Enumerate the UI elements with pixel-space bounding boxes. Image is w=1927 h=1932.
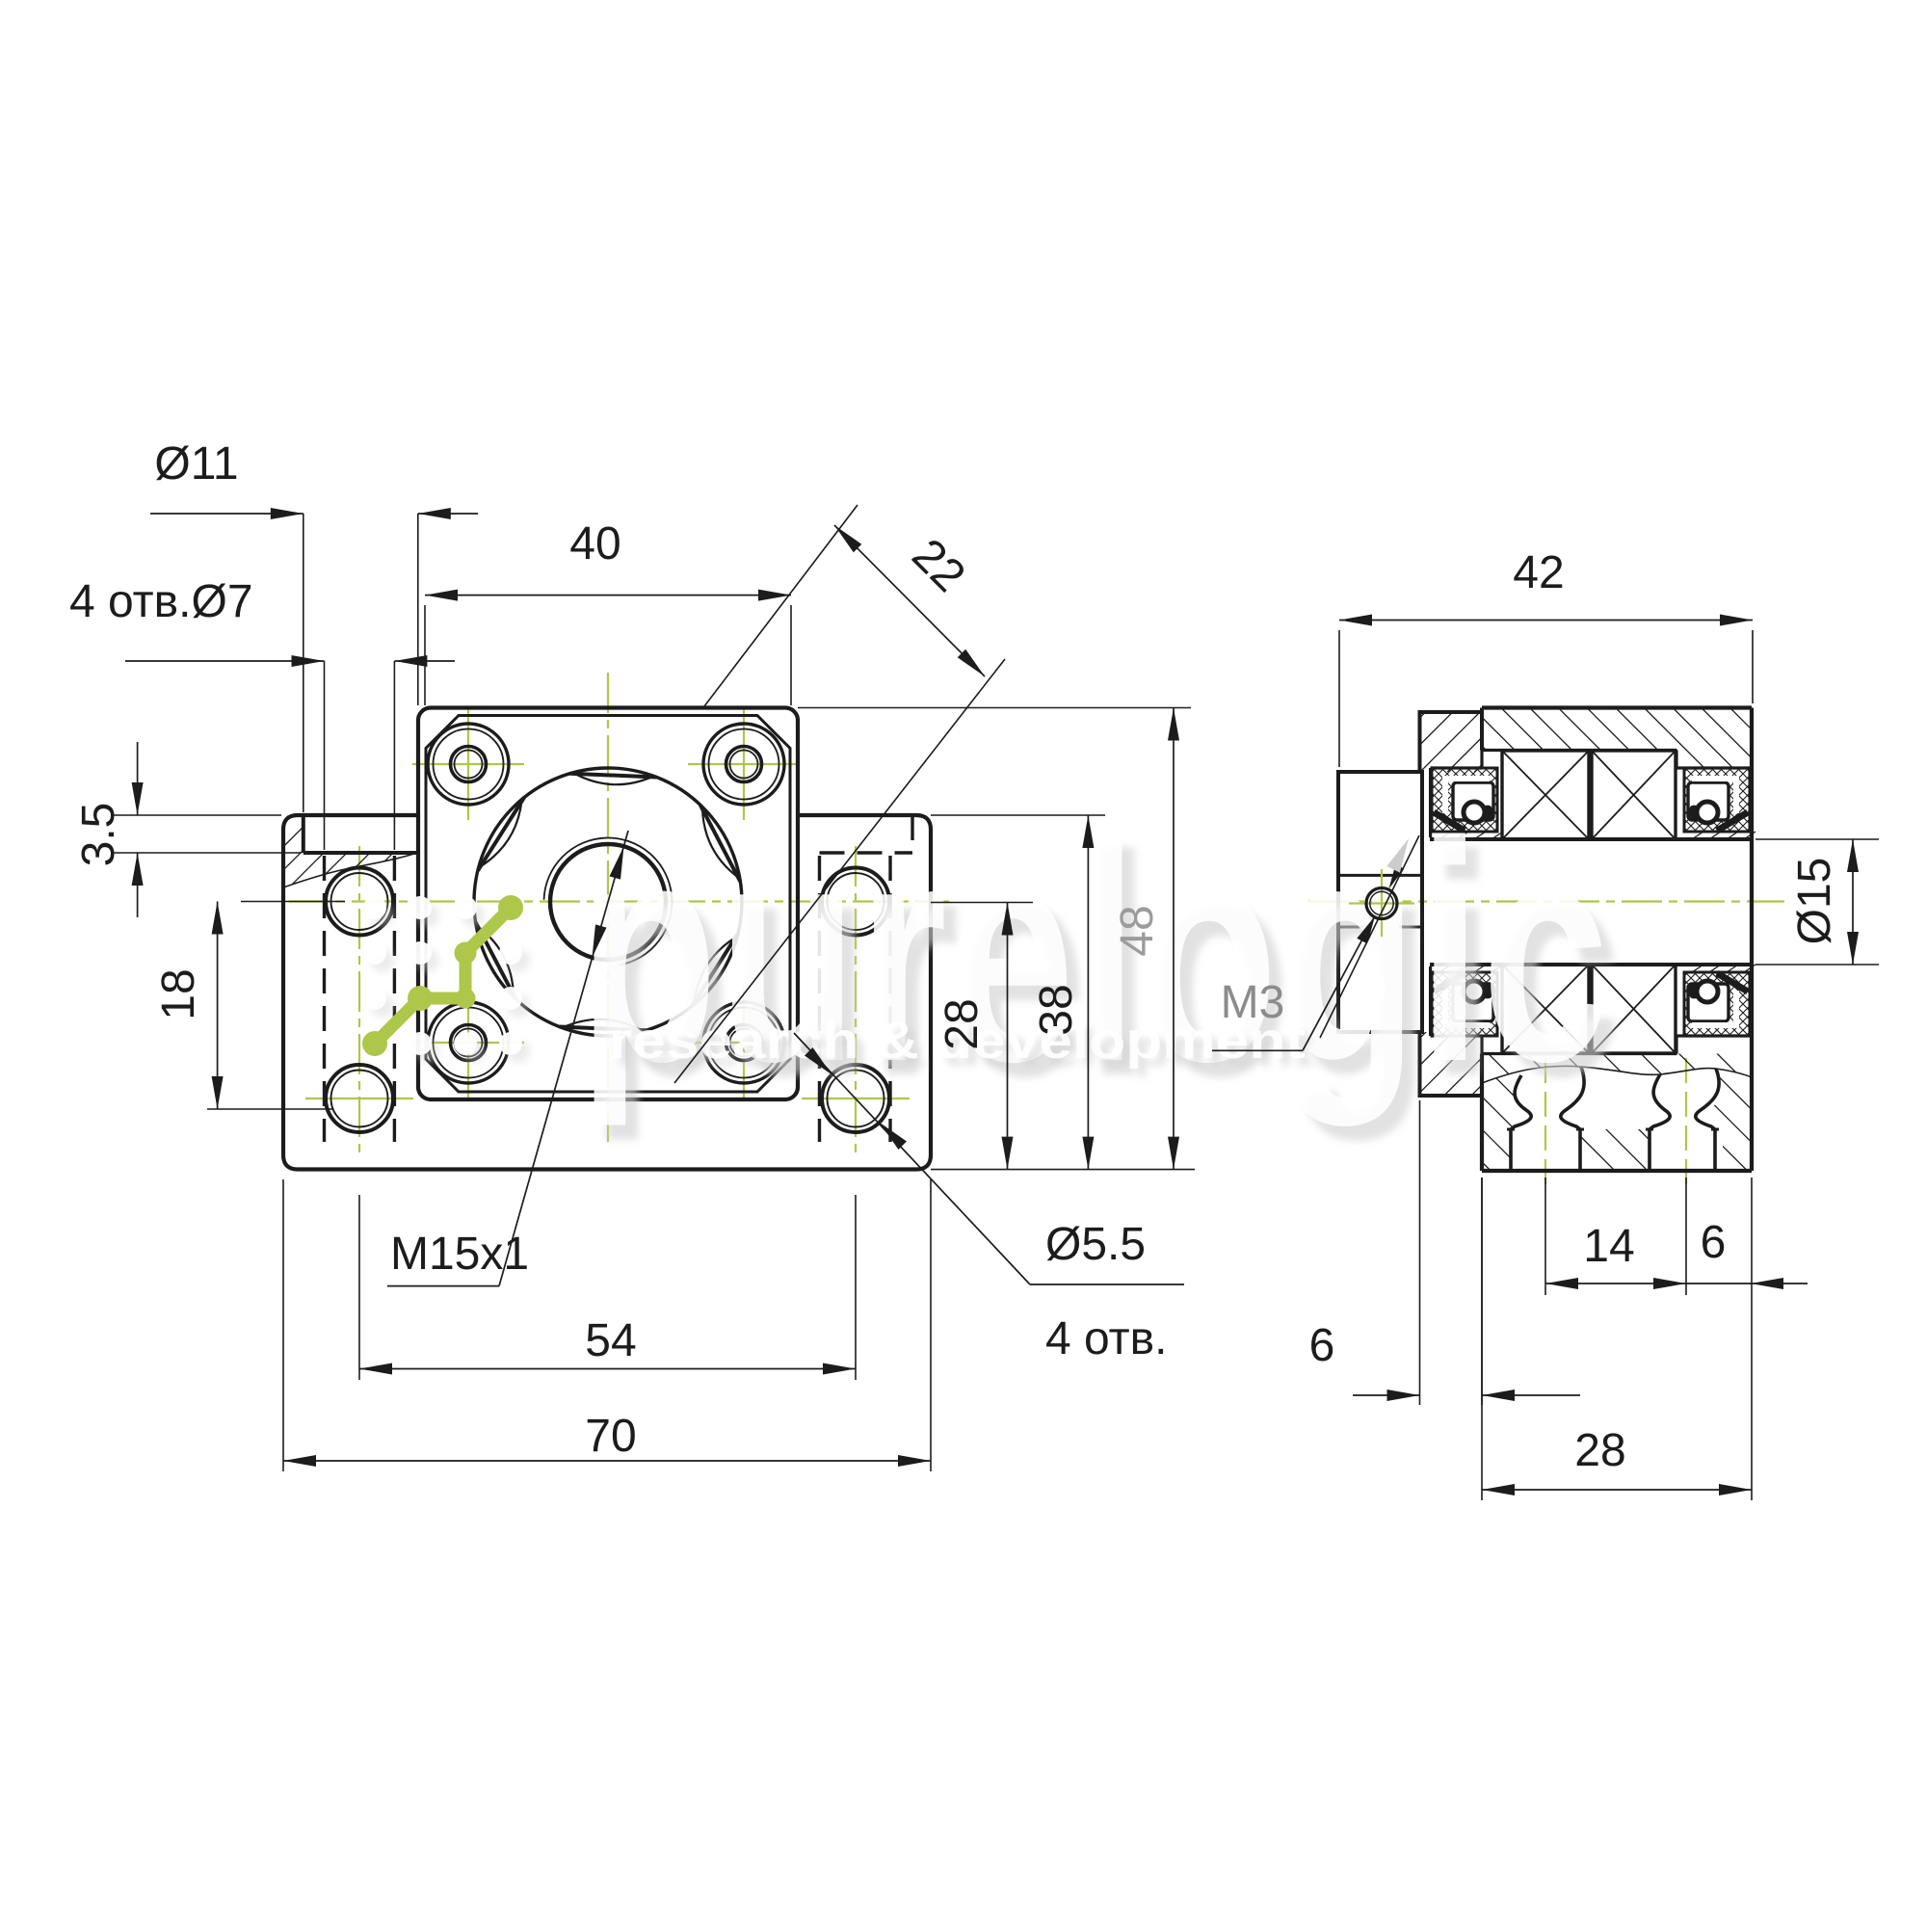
svg-text:38: 38 [1031,984,1082,1035]
svg-text:54: 54 [585,1315,636,1366]
svg-text:28: 28 [937,998,988,1049]
svg-text:70: 70 [585,1411,636,1462]
svg-text:Ø5.5: Ø5.5 [1045,1219,1146,1270]
svg-text:48: 48 [1112,905,1163,956]
svg-text:4 отв.Ø7: 4 отв.Ø7 [69,576,253,627]
svg-text:14: 14 [1583,1221,1634,1272]
svg-text:42: 42 [1513,547,1564,598]
svg-text:6: 6 [1701,1217,1727,1268]
svg-text:Ø11: Ø11 [154,438,238,490]
svg-text:3.5: 3.5 [73,803,124,867]
svg-text:40: 40 [569,518,620,569]
svg-text:Ø15: Ø15 [1789,858,1840,945]
svg-text:18: 18 [153,968,204,1019]
svg-text:28: 28 [1574,1425,1625,1476]
svg-text:4 отв.: 4 отв. [1045,1313,1168,1364]
svg-text:6: 6 [1309,1320,1335,1371]
svg-text:M3: M3 [1221,977,1285,1028]
